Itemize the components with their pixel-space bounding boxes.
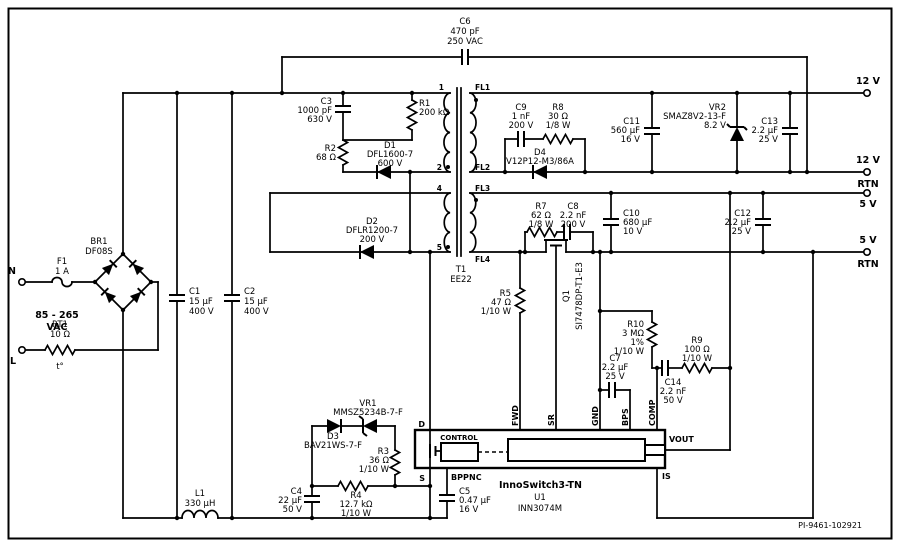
d4-part: V12P12-M3/86A <box>506 157 574 167</box>
t1-core: EE22 <box>450 275 472 285</box>
xfmr-fl3: FL3 <box>475 184 490 193</box>
label-5v: 5 V <box>859 199 877 210</box>
power-supply-schematic: N L 85 - 265 VAC F1 1 A RT1 10 Ω t° BR1 … <box>0 0 900 547</box>
c3-voltage: 630 V <box>307 115 332 125</box>
control-block <box>441 443 478 461</box>
label-5v-rtn-2: RTN <box>857 259 878 270</box>
ic-ref: U1 <box>534 493 546 503</box>
label-12v-rtn-2: RTN <box>857 179 878 190</box>
ic-name: InnoSwitch3-TN <box>499 480 582 491</box>
f1-ref: F1 <box>57 257 67 267</box>
ic-pin-gnd: GND <box>591 406 600 426</box>
c11-voltage: 16 V <box>621 135 641 145</box>
ic-control-label: CONTROL <box>440 434 478 442</box>
schematic-page: N L 85 - 265 VAC F1 1 A RT1 10 Ω t° BR1 … <box>0 0 900 547</box>
rt1-value: 10 Ω <box>50 330 71 340</box>
c10-voltage: 10 V <box>623 227 643 237</box>
xfmr-fl4: FL4 <box>475 255 490 264</box>
ic-pin-bps: BPS <box>621 408 630 426</box>
ic-pin-is: IS <box>662 472 671 481</box>
q1-part: SI7478DP-T1-E3 <box>575 262 585 330</box>
q1-ref: Q1 <box>562 290 572 302</box>
terminal-12v-rtn <box>864 169 870 175</box>
q1-mosfet-symbol <box>544 240 568 430</box>
ic-pin-vout: VOUT <box>669 435 694 444</box>
diode-symbols <box>101 124 747 436</box>
r8-power: 1/8 W <box>546 121 571 131</box>
r1-value: 200 kΩ <box>419 108 450 118</box>
ic-pin-d: D <box>418 420 425 429</box>
ic-pin-nc: NC <box>469 473 482 482</box>
r4-power: 1/10 W <box>341 509 372 519</box>
line-label: L <box>10 356 16 367</box>
ic-part: INN3074M <box>518 504 562 514</box>
r5-power: 1/10 W <box>481 307 512 317</box>
c7-voltage: 25 V <box>605 372 625 382</box>
rt1-note: t° <box>56 362 64 372</box>
ic-pin-bpp: BPP <box>451 473 469 482</box>
c13-voltage: 25 V <box>759 135 779 145</box>
xfmr-fl2: FL2 <box>475 163 490 172</box>
document-code: PI-9461-102921 <box>798 521 862 530</box>
c12-voltage: 25 V <box>732 227 752 237</box>
c6-ref: C6 <box>459 17 470 27</box>
c4-voltage: 50 V <box>283 505 303 515</box>
xfmr-pin5: 5 <box>437 243 442 252</box>
xfmr-pin1: 1 <box>439 83 444 92</box>
xfmr-pin4: 4 <box>437 184 442 193</box>
c2-ref: C2 <box>244 287 255 297</box>
l1-ref: L1 <box>195 489 205 499</box>
label-5v-rtn-1: 5 V <box>859 235 877 246</box>
ic-pin-sr: SR <box>547 414 556 426</box>
br1-ref: BR1 <box>90 237 107 247</box>
l1-value: 330 µH <box>185 499 216 509</box>
c14-voltage: 50 V <box>663 396 683 406</box>
f1-value: 1 A <box>55 267 69 277</box>
terminal-neutral <box>19 279 25 285</box>
c6-voltage: 250 VAC <box>447 37 483 47</box>
vr1-part: MMSZ5234B-7-F <box>333 408 403 418</box>
rt1-ref: RT1 <box>52 320 68 330</box>
t1-ref: T1 <box>455 265 467 275</box>
ic-pin-fwd: FWD <box>511 405 520 426</box>
c1-voltage: 400 V <box>189 307 214 317</box>
c9-voltage: 200 V <box>509 121 534 131</box>
xfmr-pin2: 2 <box>437 163 442 172</box>
label-12v: 12 V <box>856 76 881 87</box>
r9-power: 1/10 W <box>682 354 713 364</box>
terminal-5v <box>864 190 870 196</box>
r2-value: 68 Ω <box>316 153 337 163</box>
xfmr-fl1: FL1 <box>475 83 490 92</box>
ic-pin-s: S <box>419 474 425 483</box>
label-12v-rtn-1: 12 V <box>856 155 881 166</box>
vout-tab <box>645 445 665 455</box>
c2-voltage: 400 V <box>244 307 269 317</box>
secondary-controller-block <box>508 439 645 461</box>
c5-voltage: 16 V <box>459 505 479 515</box>
d3-part: BAV21WS-7-F <box>304 441 362 451</box>
neutral-label: N <box>8 266 16 277</box>
terminal-12v <box>864 90 870 96</box>
br1-part: DF08S <box>85 247 113 257</box>
c2-value: 15 µF <box>244 297 268 307</box>
c1-ref: C1 <box>189 287 200 297</box>
c8-voltage: 200 V <box>561 220 586 230</box>
terminal-line <box>19 347 25 353</box>
d2-voltage: 200 V <box>360 235 385 245</box>
terminal-5v-rtn <box>864 249 870 255</box>
c6-value: 470 pF <box>450 27 479 37</box>
vr2-voltage: 8.2 V <box>704 121 726 131</box>
r7-power: 1/8 W <box>529 220 554 230</box>
c1-value: 15 µF <box>189 297 213 307</box>
ic-pin-comp: COMP <box>648 399 657 426</box>
d1-voltage: 600 V <box>378 159 403 169</box>
r3-power: 1/10 W <box>359 465 390 475</box>
